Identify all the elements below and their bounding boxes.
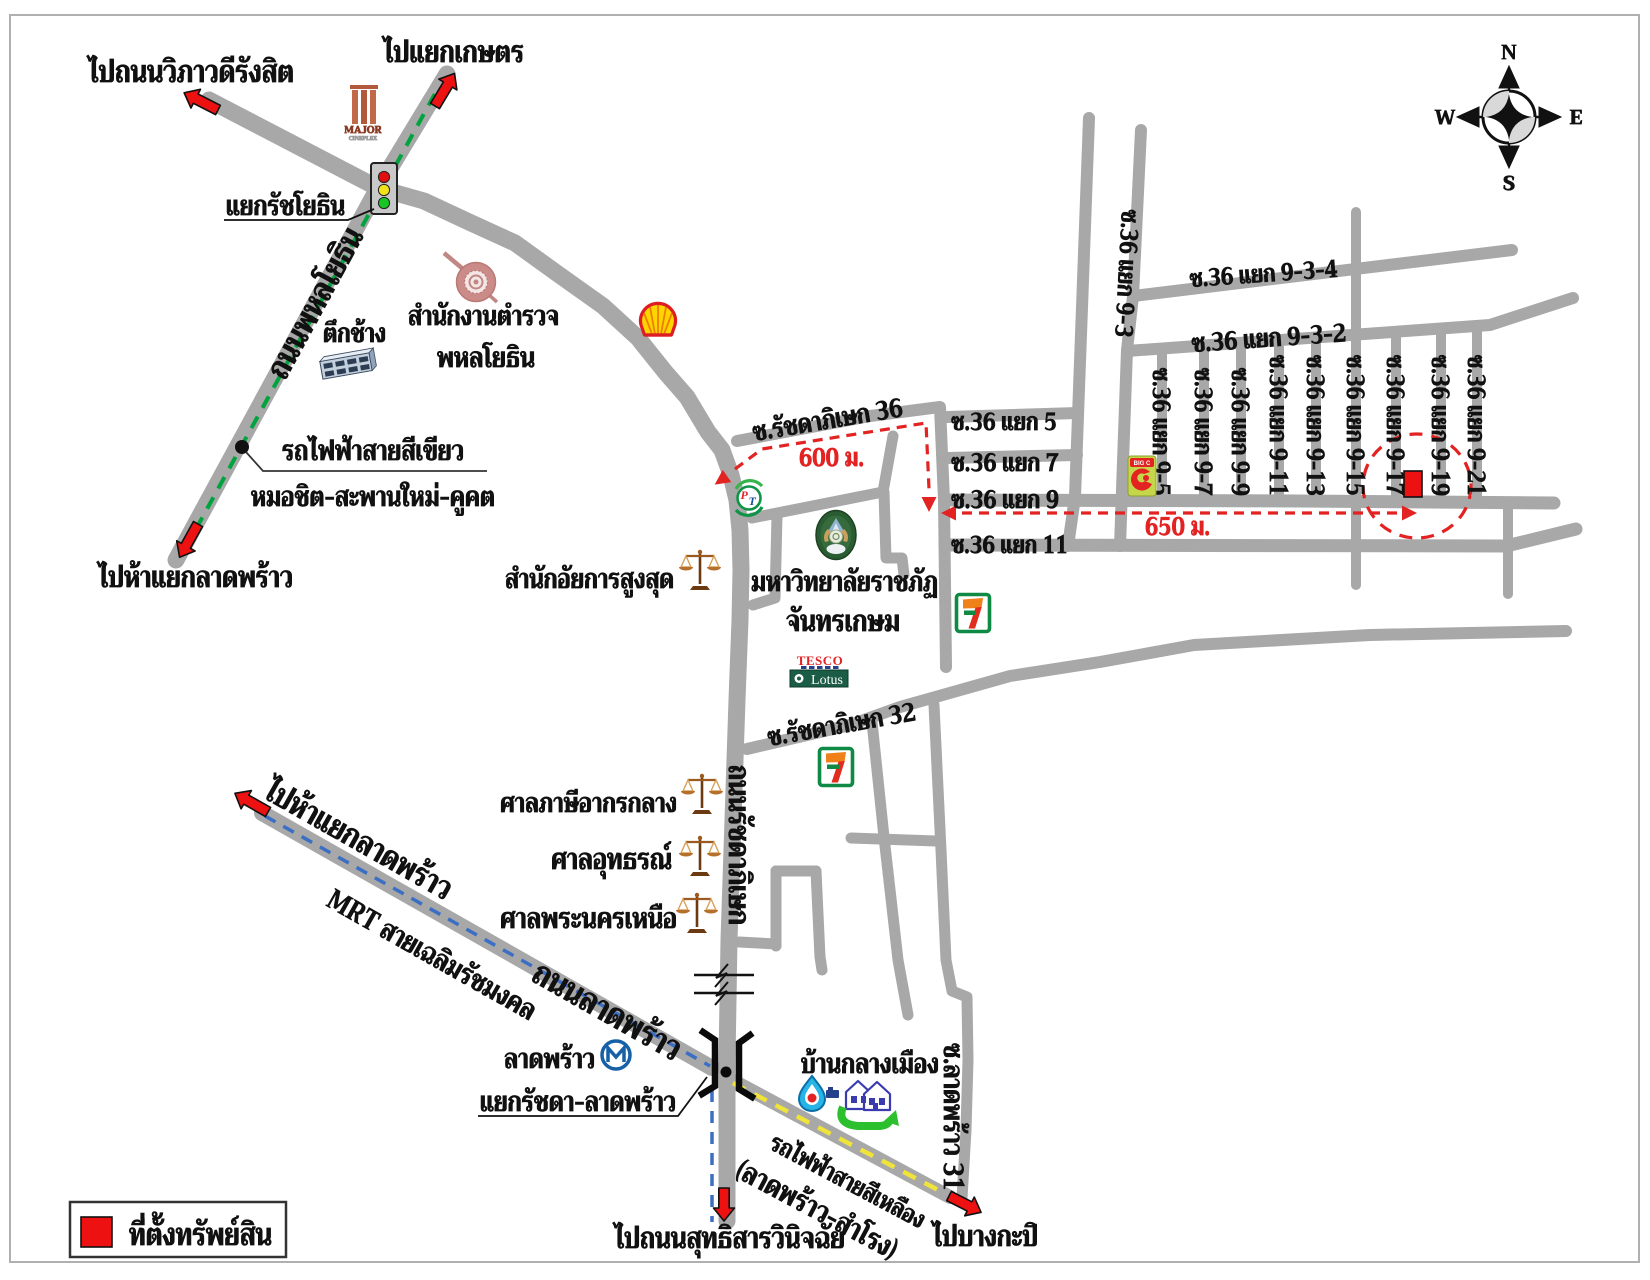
svg-text:BIG C: BIG C — [1134, 461, 1151, 467]
svg-text:T: T — [749, 494, 757, 508]
svg-text:P: P — [741, 488, 749, 502]
svg-text:TESCO: TESCO — [797, 653, 844, 668]
svg-text:Lotus: Lotus — [811, 673, 843, 688]
